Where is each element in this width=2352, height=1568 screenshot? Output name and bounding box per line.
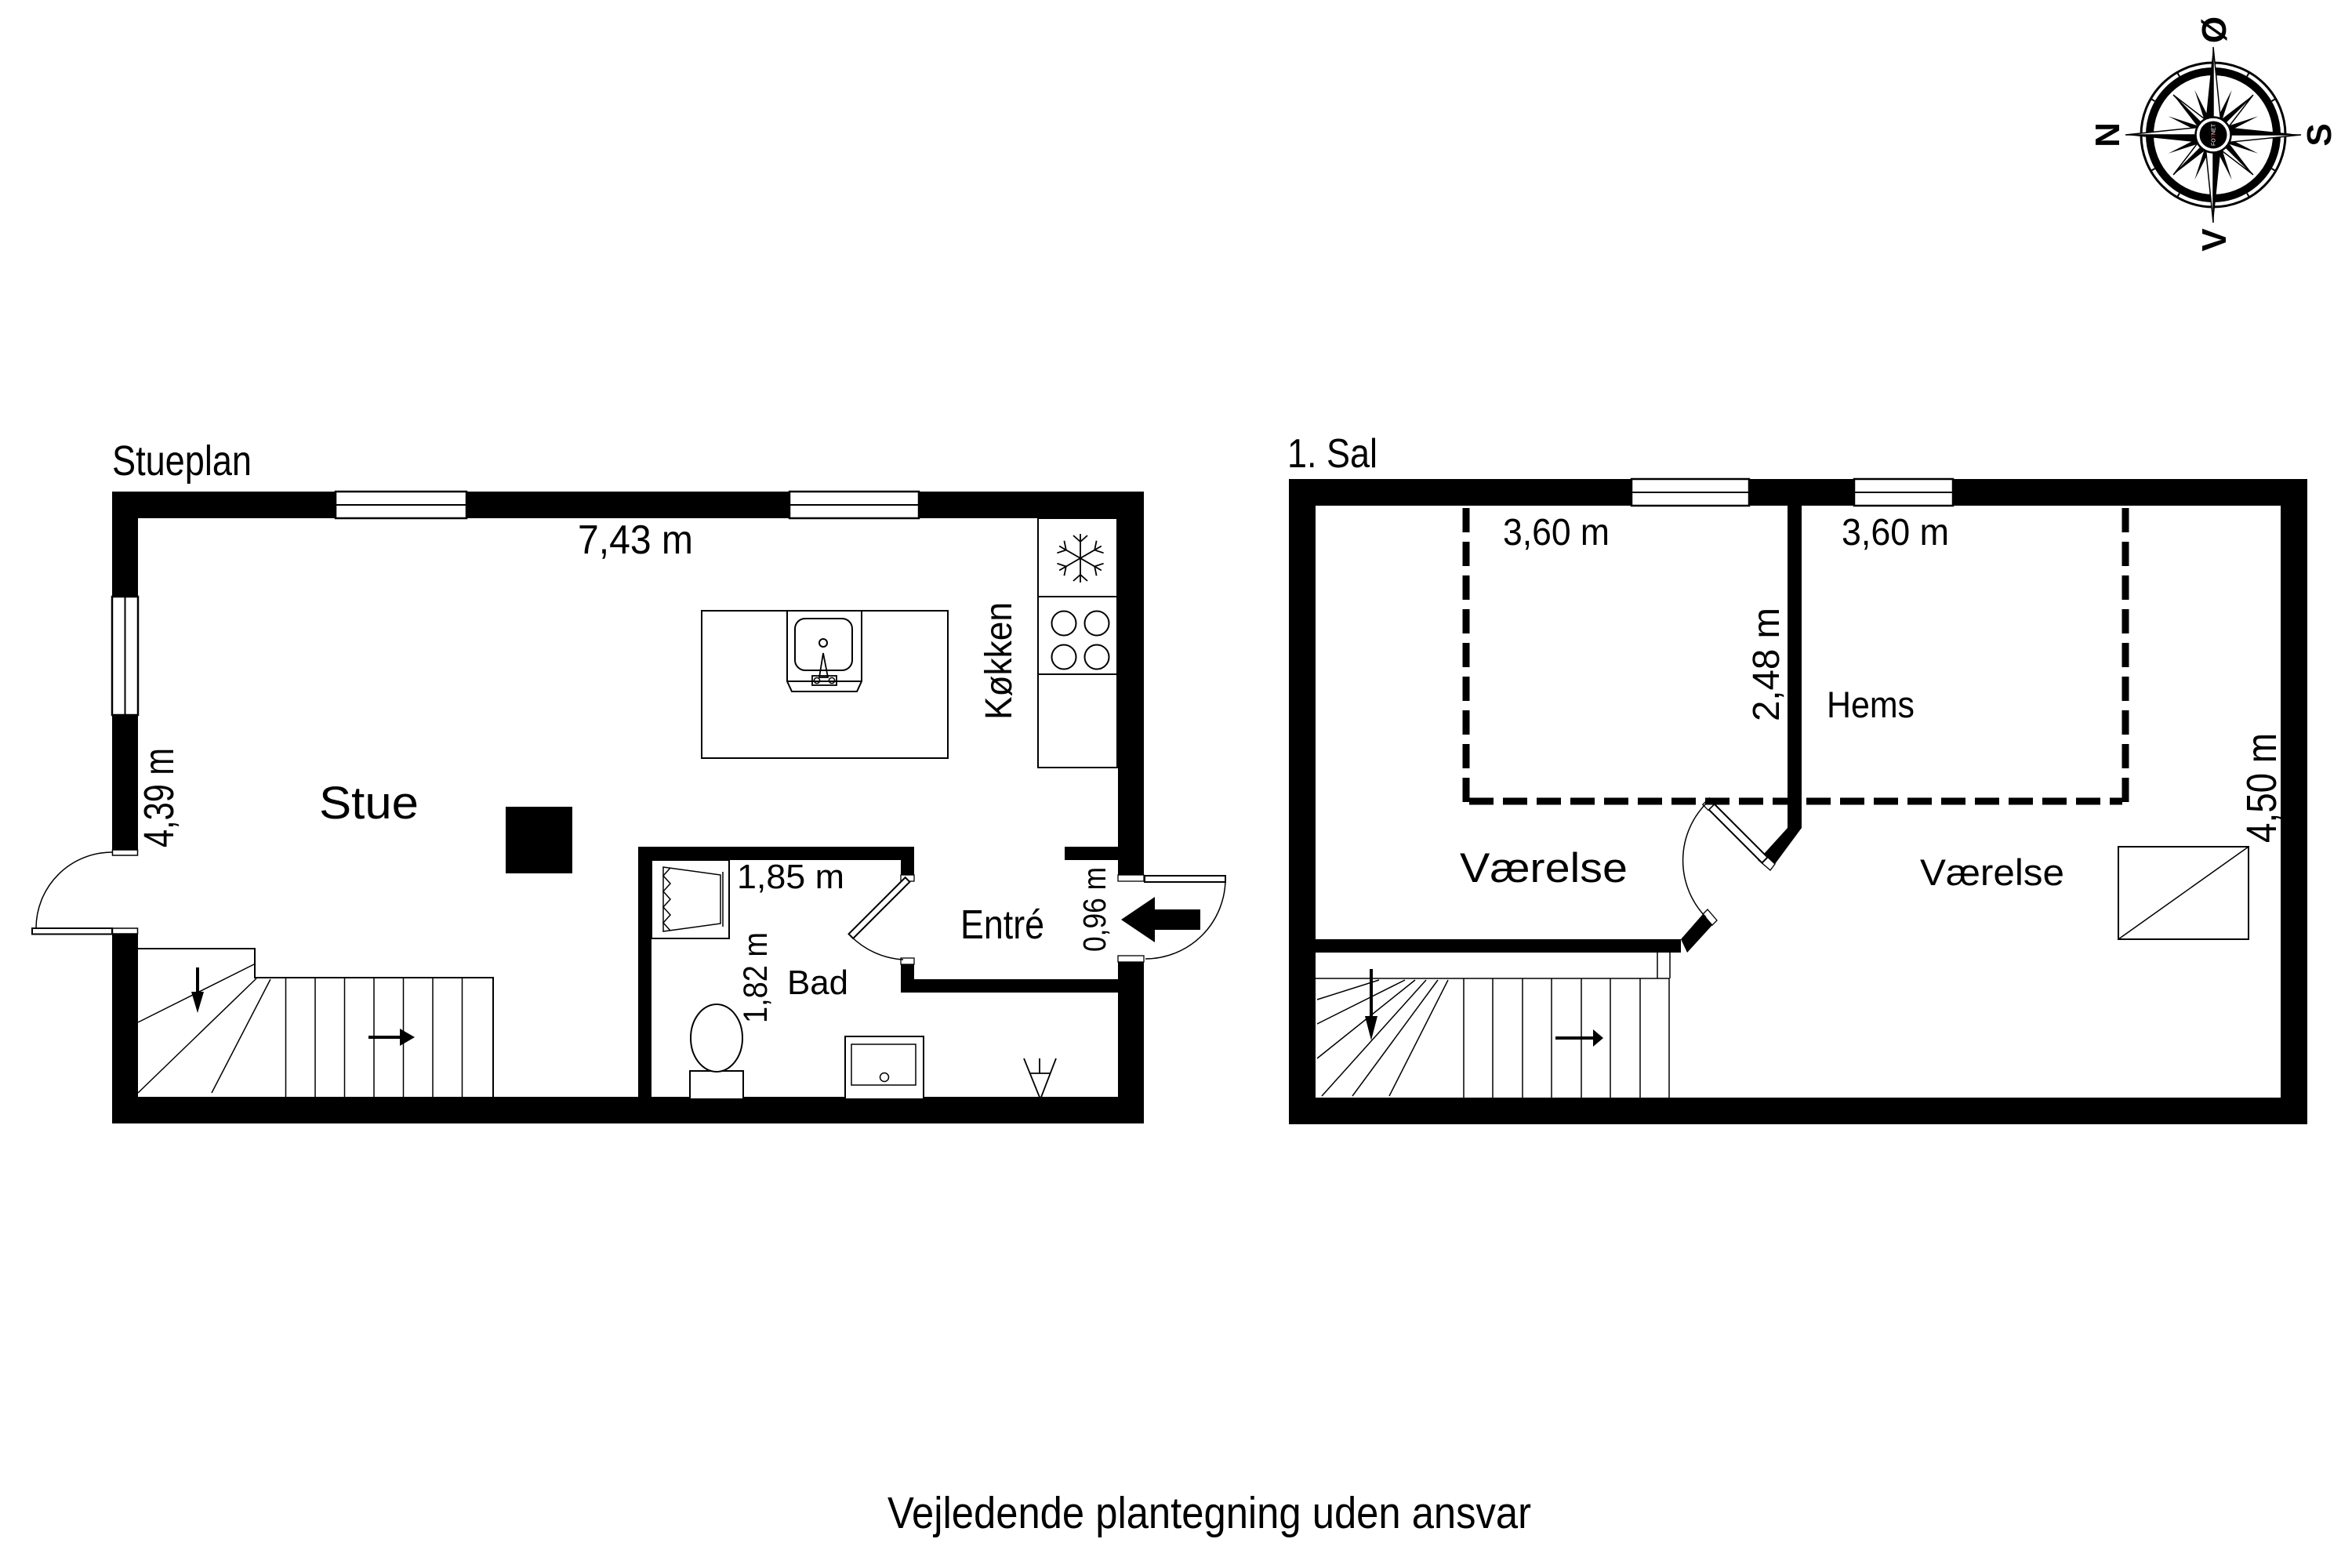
svg-text:Værelse: Værelse bbox=[1920, 851, 2064, 893]
svg-text:V: V bbox=[2195, 228, 2234, 252]
svg-text:Køkken: Køkken bbox=[978, 602, 1020, 720]
svg-text:Stue: Stue bbox=[319, 778, 419, 829]
svg-text:FOTNET: FOTNET bbox=[2210, 124, 2217, 146]
svg-text:3,60 m: 3,60 m bbox=[1842, 512, 1949, 554]
svg-text:3,60 m: 3,60 m bbox=[1503, 512, 1610, 554]
svg-text:0,96 m: 0,96 m bbox=[1076, 867, 1112, 952]
svg-text:7,43 m: 7,43 m bbox=[578, 517, 693, 563]
svg-text:Ø: Ø bbox=[2195, 16, 2234, 43]
svg-text:Vejledende plantegning uden an: Vejledende plantegning uden ansvar bbox=[887, 1488, 1531, 1538]
svg-text:N: N bbox=[2089, 122, 2127, 147]
svg-text:Hems: Hems bbox=[1827, 684, 1915, 725]
svg-text:1,82 m: 1,82 m bbox=[737, 932, 775, 1023]
svg-text:4,50 m: 4,50 m bbox=[2238, 733, 2285, 843]
svg-text:S: S bbox=[2300, 123, 2339, 146]
svg-text:Bad: Bad bbox=[787, 964, 848, 1002]
svg-text:Værelse: Værelse bbox=[1460, 845, 1628, 891]
svg-text:1. Sal: 1. Sal bbox=[1287, 431, 1377, 477]
svg-text:Entré: Entré bbox=[960, 902, 1044, 948]
svg-text:Stueplan: Stueplan bbox=[112, 437, 252, 485]
svg-text:4,39 m: 4,39 m bbox=[136, 748, 183, 848]
svg-text:2,48 m: 2,48 m bbox=[1746, 608, 1788, 721]
svg-text:1,85 m: 1,85 m bbox=[737, 858, 844, 896]
